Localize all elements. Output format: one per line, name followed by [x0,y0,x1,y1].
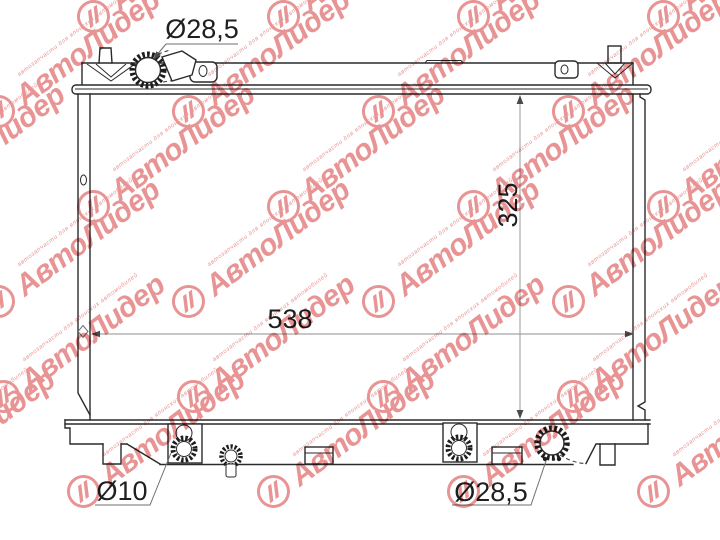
outlet-label: Ø28,5 [454,477,528,507]
bottom-tab-right [492,447,522,464]
dimension-core-width: 538 [78,304,634,338]
core [78,94,645,420]
radiator-diagram-page: 538 325 Ø28,5 Ø10 Ø28,5 автозапчасти для… [0,0,720,540]
top-left-tab [99,48,112,63]
drain-bolt [222,447,241,478]
dimension-outlet: Ø28,5 [452,461,546,507]
drain-label: Ø10 [96,476,147,506]
drain-fitting [168,424,202,463]
bottom-tank [65,420,650,477]
top-right-bracket [555,61,578,78]
dimension-filler-neck: Ø28,5 [153,14,239,60]
top-left-gusset [87,64,135,81]
top-right-gusset [597,63,633,78]
filler-neck [133,50,197,86]
radiator-diagram-svg: 538 325 Ø28,5 Ø10 Ø28,5 [0,0,720,540]
bottom-right-leg [600,444,615,465]
side-hole [81,175,87,185]
lower-hose-fitting [443,423,477,462]
dimension-drain: Ø10 [95,453,171,506]
dimension-core-height: 325 [493,95,523,419]
bottom-left-leg [103,444,127,464]
filler-neck-label: Ø28,5 [165,14,239,44]
bottom-tab-left [305,447,333,464]
top-right-tab [608,46,621,63]
core-height-label: 325 [493,182,523,227]
core-width-label: 538 [267,304,312,334]
